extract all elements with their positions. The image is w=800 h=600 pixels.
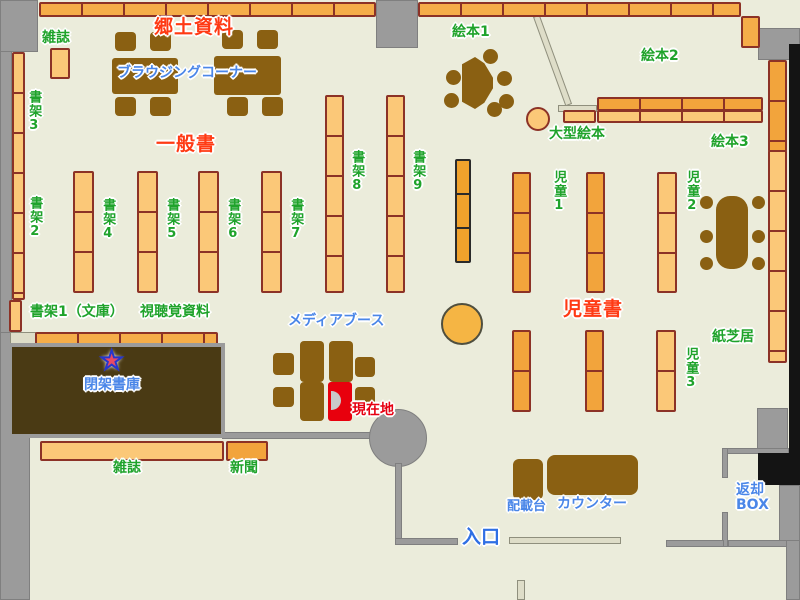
wall-closedstacks-to-pillar: [222, 432, 374, 439]
shelf-column-7: [261, 171, 282, 293]
shelf-left-wall-low: [9, 300, 22, 332]
media-booth-chair: [273, 353, 294, 375]
shelf-magazines-top: [50, 48, 70, 79]
label-shelf2: 書架2: [27, 196, 41, 240]
label-shelf5: 書架5: [164, 198, 178, 242]
label-shelf9: 書架9: [410, 150, 424, 194]
chair: [257, 30, 278, 49]
chair: [227, 97, 248, 116]
label-closed-stacks: 閉架書庫: [84, 378, 140, 393]
partition-diagonal: [533, 15, 572, 107]
label-audiovisual: 視聴覚資料: [140, 305, 210, 320]
center-round-table: [441, 303, 483, 345]
label-children3: 児童3: [683, 347, 697, 391]
counter-desk: [547, 455, 638, 495]
shelf-children-1b: [586, 172, 605, 293]
media-booth-desk: [329, 341, 353, 382]
chair: [752, 257, 765, 270]
wall-returnbox-block: [757, 408, 788, 453]
media-booth-chair: [273, 387, 294, 407]
shelf-right-wall: [768, 150, 787, 363]
shelf-magazines-bottom: [40, 441, 224, 461]
chair: [487, 102, 502, 117]
shelf-children-2: [657, 172, 677, 293]
shelf-top-wall-right: [418, 2, 741, 17]
label-browsing-corner: ブラウジングコーナー: [117, 66, 257, 81]
chair: [752, 196, 765, 209]
chair: [262, 97, 283, 116]
fan-table: [462, 57, 493, 109]
label-counter: カウンター: [557, 497, 627, 512]
media-booth-chair: [355, 357, 375, 377]
wall-corner-bottom-right: [786, 540, 800, 600]
label-magazines-top: 雑誌: [42, 31, 70, 46]
label-children-books: 児童書: [563, 299, 623, 320]
label-return-box: 返却 BOX: [736, 483, 769, 514]
shelf-column-6: [198, 171, 219, 293]
wall-returnbox-left-upper: [722, 448, 728, 478]
wall-bottom-1: [666, 540, 724, 547]
shelf-top-wall-left: [39, 2, 376, 17]
wall-entrance-vertical: [395, 463, 402, 545]
chair: [444, 93, 459, 108]
label-local-materials: 郷土資料: [154, 17, 234, 38]
chair: [446, 70, 461, 85]
library-floor-map: ★ 雑誌 郷土資料 ブラウジングコーナー 書架3 一般書 書架2 書架4 書架5…: [0, 0, 800, 600]
shelf-right-wall-top: [768, 60, 787, 152]
label-children1: 児童1: [551, 170, 565, 214]
label-shelf6: 書架6: [225, 198, 239, 242]
label-media-booth: メディアブース: [288, 314, 384, 329]
chair: [700, 257, 713, 270]
label-general-books: 一般書: [156, 134, 216, 155]
wall-corner-top-left: [0, 0, 38, 52]
wall-returnbox-right: [779, 485, 800, 543]
label-large-picture-books: 大型絵本: [549, 127, 605, 142]
children-table: [716, 196, 748, 269]
chair: [150, 97, 171, 116]
shelf-column-4: [73, 171, 94, 293]
label-current-location: 現在地: [352, 403, 394, 418]
label-magazines-bottom: 雑誌: [113, 461, 141, 476]
shelf-narrow-dark: [455, 159, 471, 263]
shelf-children-1a: [512, 172, 531, 293]
media-booth-desk: [300, 382, 324, 421]
shelf-top-wall-corner: [741, 16, 760, 48]
label-return-box-line1: 返却: [736, 483, 769, 498]
wall-entrance-horizontal: [395, 538, 458, 545]
label-shelf4: 書架4: [100, 198, 114, 242]
label-picture-books3: 絵本3: [711, 135, 749, 150]
shelf-children-3a: [512, 330, 531, 412]
label-shelf7: 書架7: [288, 198, 302, 242]
shelf-picturebooks-row-front: [597, 110, 763, 123]
label-entrance: 入口: [462, 527, 500, 548]
chair: [700, 230, 713, 243]
label-shelf1-bunko: 書架1（文庫）: [30, 305, 124, 320]
shelf-picturebooks-row-back: [597, 97, 763, 111]
chair: [700, 196, 713, 209]
shelf-children-3b: [585, 330, 604, 412]
shelf-column-8: [325, 95, 344, 293]
label-children2: 児童2: [684, 170, 698, 214]
shelf-column-5: [137, 171, 158, 293]
chair: [115, 97, 136, 116]
wall-returnbox-black: [758, 453, 800, 485]
media-booth-desk: [300, 341, 324, 382]
chair: [483, 49, 498, 64]
shelf-children-3c: [656, 330, 676, 412]
shelf-column-9: [386, 95, 405, 293]
wall-left-strip: [0, 51, 12, 333]
label-newspapers: 新聞: [230, 461, 258, 476]
label-picture-books1: 絵本1: [452, 25, 490, 40]
chair: [115, 32, 136, 51]
shelf-large-picturebooks: [563, 110, 596, 123]
shelf-newspapers: [226, 441, 268, 461]
label-sorting-desk: 配載台: [507, 500, 546, 514]
partition-door-post: [517, 580, 525, 600]
wall-pillar-top: [376, 0, 418, 48]
chair: [497, 71, 512, 86]
label-kamishibai: 紙芝居: [712, 330, 754, 345]
partition-entrance: [509, 537, 621, 544]
label-shelf3: 書架3: [26, 90, 40, 134]
sorting-desk: [513, 459, 543, 500]
wall-bottom-2: [728, 540, 789, 547]
label-shelf8: 書架8: [349, 150, 363, 194]
label-return-box-line2: BOX: [736, 498, 769, 513]
shelf-left-wall: [12, 52, 25, 300]
star-icon: ★: [100, 346, 123, 376]
large-picturebook-round-table: [526, 107, 550, 131]
chair: [752, 230, 765, 243]
label-picture-books2: 絵本2: [641, 49, 679, 64]
